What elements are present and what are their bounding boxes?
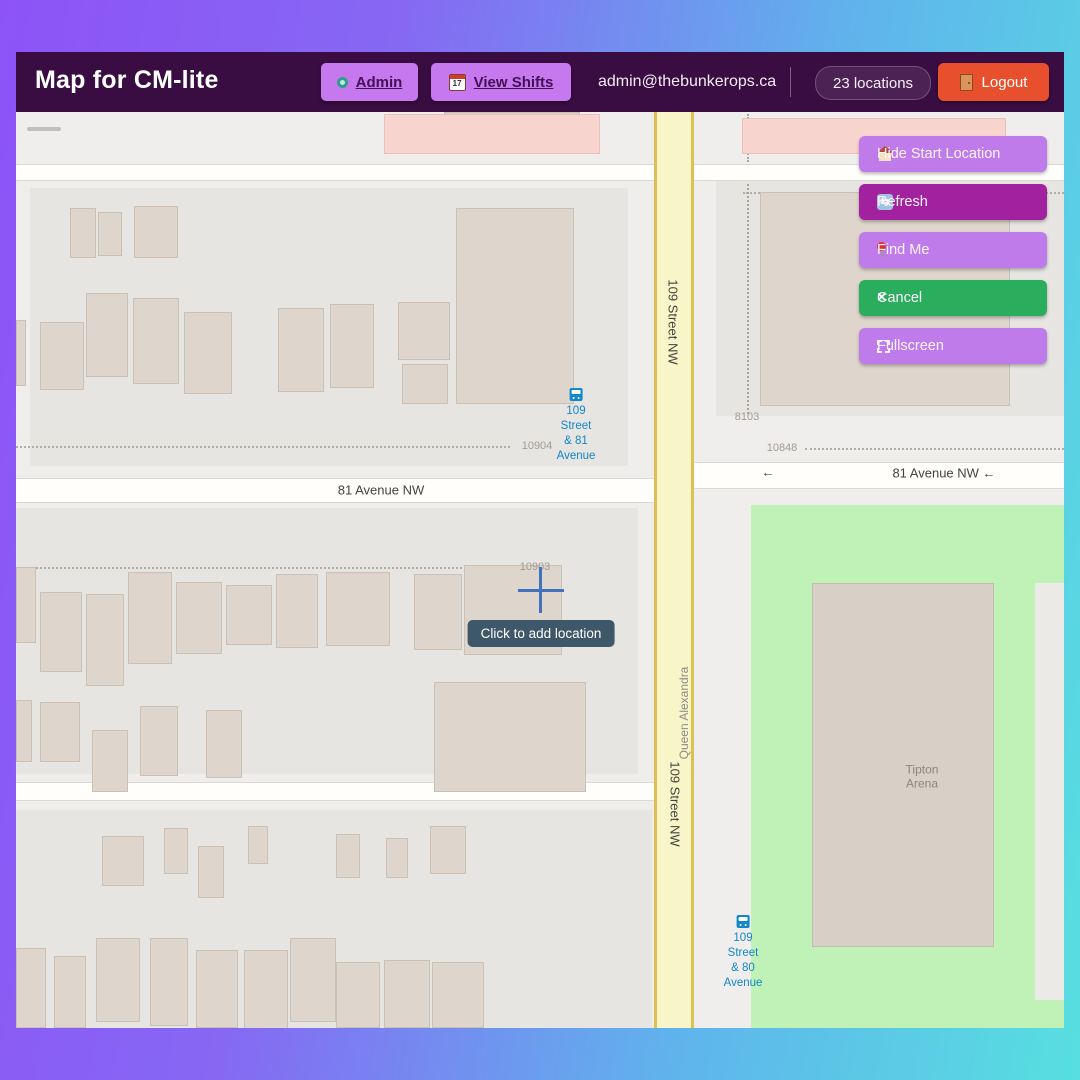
find-me-label: Find Me: [877, 242, 929, 258]
cancel-button[interactable]: × Cancel: [859, 280, 1047, 316]
building: [434, 682, 586, 792]
building: [98, 212, 122, 256]
house-number-label: 10903: [520, 561, 551, 573]
boundary-dotted-line: [747, 184, 749, 414]
building: [150, 938, 188, 1026]
building: [432, 962, 484, 1028]
building: [102, 836, 144, 886]
view-shifts-button[interactable]: View Shifts: [431, 63, 571, 101]
building: [384, 960, 430, 1028]
fullscreen-label: Fullscreen: [877, 338, 944, 354]
refresh-label: Refresh: [877, 194, 928, 210]
bus-stop-marker: 109 Street& 80 Avenue: [724, 915, 763, 991]
street-name-label: ←: [762, 465, 775, 480]
building: [276, 574, 318, 648]
page-title: Map for CM-lite: [35, 66, 219, 95]
door-icon: [960, 74, 973, 91]
building: [398, 302, 450, 360]
building: [134, 206, 178, 258]
building: [54, 956, 86, 1028]
building: [278, 308, 324, 392]
add-location-tooltip: Click to add location: [468, 620, 615, 647]
main-road: [654, 112, 694, 1028]
building: [336, 962, 380, 1028]
user-email: admin@thebunkerops.ca: [598, 73, 776, 91]
building: [244, 950, 288, 1028]
fullscreen-button[interactable]: Fullscreen: [859, 328, 1047, 364]
building: [336, 834, 360, 878]
poi-label: TiptonArena: [906, 763, 939, 792]
building: [16, 948, 46, 1028]
boundary-dotted-line: [16, 446, 510, 448]
building: [40, 322, 84, 390]
building: [402, 364, 448, 404]
retail-building: [384, 114, 600, 154]
view-shifts-button-label: View Shifts: [474, 74, 554, 91]
header-divider: [790, 67, 791, 97]
building: [326, 572, 390, 646]
building: [456, 208, 574, 404]
building: [70, 208, 96, 258]
calendar-icon: [449, 74, 466, 91]
locations-count-badge: 23 locations: [815, 66, 931, 100]
building: [176, 582, 222, 654]
street-name-label: 81 Avenue NW: [338, 483, 424, 498]
building: [96, 938, 140, 1022]
bus-stop-label: 109 Street& 80 Avenue: [724, 931, 763, 991]
building: [248, 826, 268, 864]
house-number-label: 10848: [767, 442, 798, 454]
street-name-label: 109 Street NW: [668, 761, 683, 846]
zoom-in-button[interactable]: +: [29, 129, 59, 131]
street-road: [674, 462, 1064, 489]
building: [198, 846, 224, 898]
building: [164, 828, 188, 874]
crosshair-icon: [539, 567, 542, 613]
admin-button-label: Admin: [356, 74, 403, 91]
building: [386, 838, 408, 878]
boundary-dotted-line: [805, 448, 1064, 450]
bus-stop-label: 109 Street& 81 Avenue: [557, 404, 596, 464]
zoom-control: + −: [27, 127, 61, 131]
street-name-label: 109 Street NW: [666, 279, 681, 364]
map-action-panel: Hide Start Location ⇆ Refresh Find Me × …: [859, 136, 1047, 376]
building: [16, 700, 32, 762]
arena-building: [812, 583, 994, 947]
house-number-label: 10904: [522, 440, 553, 452]
bus-icon: [569, 388, 582, 401]
app-window: Map for CM-lite Admin View Shifts admin@…: [16, 52, 1064, 1028]
house-number-label: 8103: [735, 411, 759, 423]
header-bar: Map for CM-lite Admin View Shifts admin@…: [16, 52, 1064, 112]
building: [133, 298, 179, 384]
building: [86, 594, 124, 686]
building: [86, 293, 128, 377]
street-name-label: Queen Alexandra: [677, 667, 691, 760]
bus-stop-marker: 109 Street& 81 Avenue: [557, 388, 596, 464]
building: [128, 572, 172, 664]
logout-button[interactable]: Logout: [938, 63, 1049, 101]
building: [226, 585, 272, 645]
building: [16, 567, 36, 643]
admin-button[interactable]: Admin: [321, 63, 418, 101]
building: [140, 706, 178, 776]
building: [40, 592, 82, 672]
map-canvas[interactable]: 81 Avenue NW←81 Avenue NW ←109 Street NW…: [16, 112, 1064, 1028]
building: [290, 938, 336, 1022]
building: [184, 312, 232, 394]
building: [430, 826, 466, 874]
boundary-dotted-line: [16, 567, 506, 569]
bus-icon: [736, 915, 749, 928]
refresh-button[interactable]: ⇆ Refresh: [859, 184, 1047, 220]
building: [414, 574, 462, 650]
logout-button-label: Logout: [982, 74, 1028, 91]
building: [330, 304, 374, 388]
building: [40, 702, 80, 762]
park-path: [1035, 583, 1064, 1000]
find-me-button[interactable]: Find Me: [859, 232, 1047, 268]
building: [206, 710, 242, 778]
cancel-label: Cancel: [877, 290, 922, 306]
hide-start-location-label: Hide Start Location: [877, 146, 1000, 162]
building: [16, 320, 26, 386]
zoom-out-button[interactable]: −: [29, 129, 59, 131]
street-name-label: 81 Avenue NW ←: [892, 466, 995, 481]
gear-icon: [337, 77, 348, 88]
building: [196, 950, 238, 1028]
hide-start-location-button[interactable]: Hide Start Location: [859, 136, 1047, 172]
building: [92, 730, 128, 792]
